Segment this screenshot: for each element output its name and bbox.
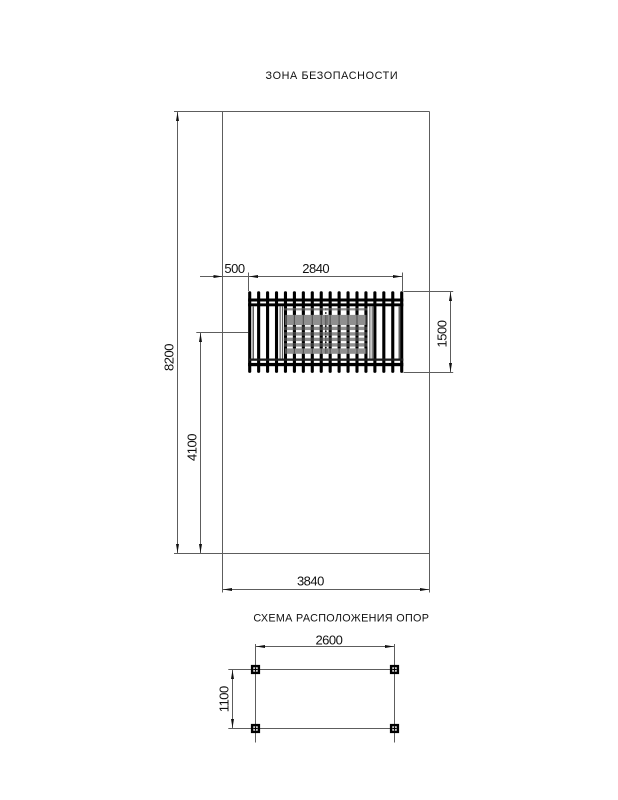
svg-text:ЗОНА БЕЗОПАСНОСТИ: ЗОНА БЕЗОПАСНОСТИ [266, 70, 399, 82]
svg-text:2840: 2840 [302, 261, 329, 276]
svg-text:500: 500 [224, 261, 244, 276]
svg-text:1500: 1500 [435, 320, 450, 347]
svg-text:4100: 4100 [185, 434, 200, 461]
svg-text:3840: 3840 [297, 574, 324, 589]
svg-text:1100: 1100 [217, 686, 232, 712]
svg-text:2600: 2600 [315, 632, 342, 647]
svg-text:8200: 8200 [162, 344, 177, 371]
svg-text:СХЕМА РАСПОЛОЖЕНИЯ ОПОР: СХЕМА РАСПОЛОЖЕНИЯ ОПОР [253, 613, 429, 625]
